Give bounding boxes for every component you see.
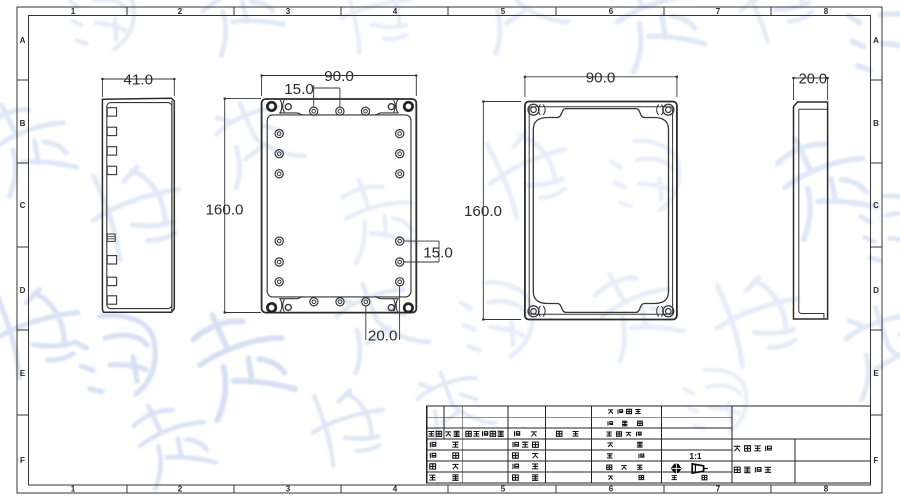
svg-text:1: 1 bbox=[71, 7, 76, 16]
svg-text:A: A bbox=[20, 36, 26, 45]
svg-text:41.0: 41.0 bbox=[124, 72, 154, 89]
svg-text:E: E bbox=[873, 369, 879, 378]
svg-text:A: A bbox=[873, 36, 879, 45]
svg-text:8: 8 bbox=[824, 7, 829, 16]
svg-text:1: 1 bbox=[71, 485, 76, 494]
svg-text:3: 3 bbox=[286, 485, 291, 494]
svg-text:4: 4 bbox=[393, 7, 398, 16]
svg-text:15.0: 15.0 bbox=[423, 245, 453, 262]
svg-text:90.0: 90.0 bbox=[586, 69, 616, 86]
svg-text:7: 7 bbox=[716, 485, 721, 494]
svg-text:E: E bbox=[20, 369, 26, 378]
svg-text:5: 5 bbox=[501, 7, 506, 16]
svg-text:B: B bbox=[873, 119, 879, 128]
svg-text:6: 6 bbox=[609, 485, 614, 494]
svg-text:2: 2 bbox=[178, 485, 183, 494]
svg-text:1:1: 1:1 bbox=[689, 451, 702, 461]
svg-text:160.0: 160.0 bbox=[205, 202, 243, 219]
svg-text:3: 3 bbox=[286, 7, 291, 16]
svg-text:2: 2 bbox=[178, 7, 183, 16]
svg-text:C: C bbox=[873, 201, 879, 210]
svg-text:8: 8 bbox=[824, 485, 829, 494]
svg-text:F: F bbox=[874, 456, 879, 465]
svg-text:7: 7 bbox=[716, 7, 721, 16]
svg-text:B: B bbox=[20, 119, 26, 128]
svg-text:5: 5 bbox=[501, 485, 506, 494]
svg-text:90.0: 90.0 bbox=[324, 68, 354, 85]
svg-text:6: 6 bbox=[609, 7, 614, 16]
svg-text:4: 4 bbox=[393, 485, 398, 494]
svg-text:D: D bbox=[873, 286, 879, 295]
svg-text:15.0: 15.0 bbox=[284, 81, 314, 98]
svg-text:20.0: 20.0 bbox=[368, 328, 398, 345]
svg-text:20.0: 20.0 bbox=[799, 72, 827, 88]
svg-text:D: D bbox=[20, 286, 26, 295]
svg-text:160.0: 160.0 bbox=[464, 203, 502, 220]
svg-text:C: C bbox=[20, 201, 26, 210]
svg-text:F: F bbox=[20, 456, 25, 465]
